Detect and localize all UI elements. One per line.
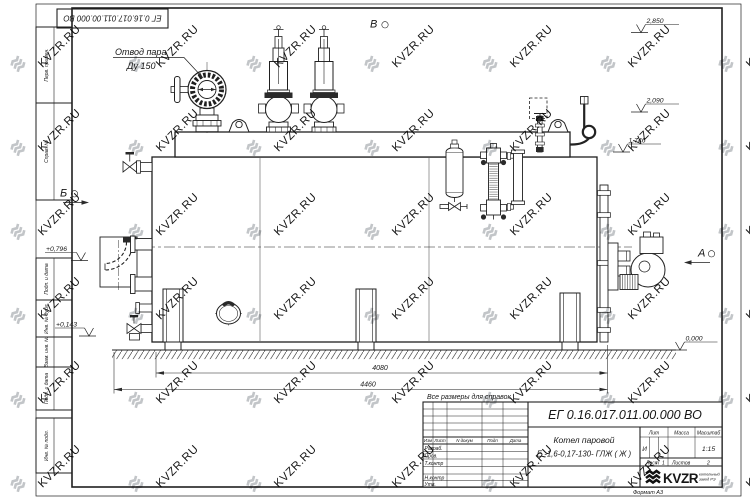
- drawing-canvas: KVZR.RU: [0, 0, 750, 500]
- watermark-layer: [0, 0, 750, 500]
- drawing-sheet: KVZR.RU: [0, 0, 750, 500]
